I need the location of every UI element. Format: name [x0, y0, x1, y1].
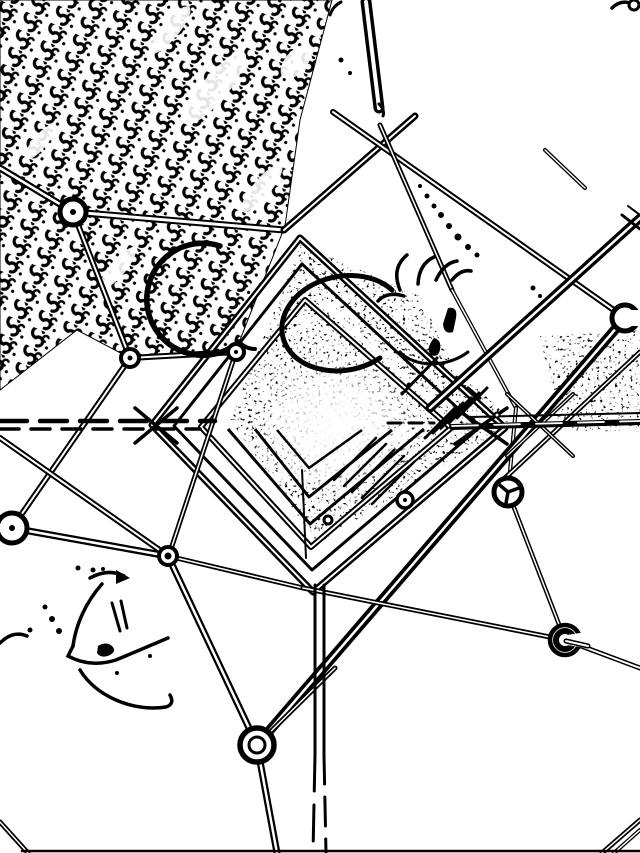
edge-art-svg [0, 0, 640, 853]
edge-detected-photo [0, 0, 640, 853]
